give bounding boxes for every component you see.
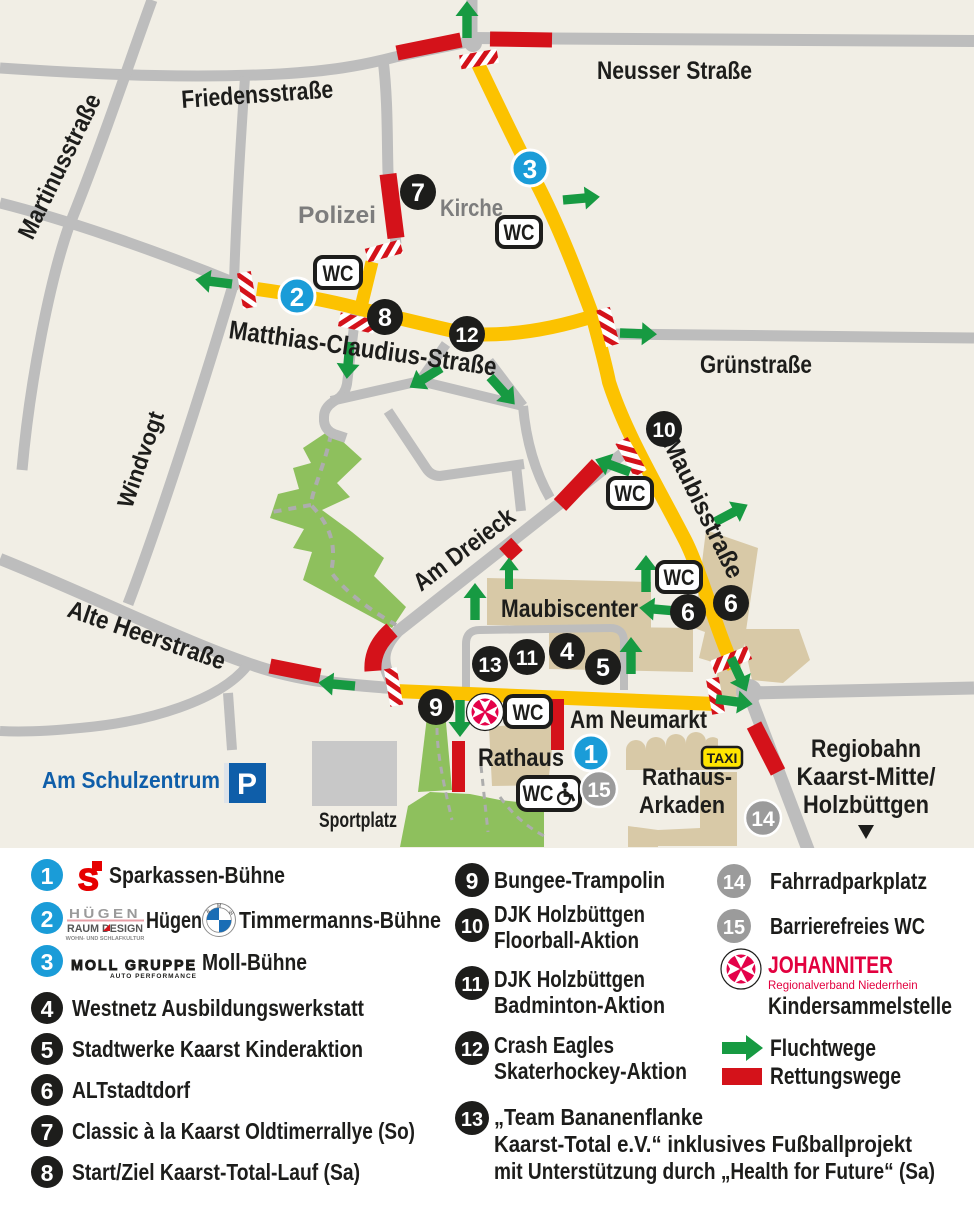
svg-text:WC: WC — [615, 481, 646, 506]
svg-text:Kindersammelstelle: Kindersammelstelle — [768, 993, 952, 1020]
svg-text:13: 13 — [478, 654, 501, 677]
svg-text:Grünstraße: Grünstraße — [700, 351, 812, 379]
svg-text:7: 7 — [41, 1119, 54, 1145]
svg-text:Moll-Bühne: Moll-Bühne — [202, 949, 307, 975]
svg-text:5: 5 — [596, 654, 610, 682]
svg-text:4: 4 — [560, 638, 574, 666]
svg-text:„Team Bananenflanke: „Team Bananenflanke — [494, 1104, 703, 1130]
svg-text:HÜGEN: HÜGEN — [69, 906, 141, 921]
svg-text:11: 11 — [461, 974, 482, 996]
svg-text:9: 9 — [466, 868, 479, 894]
svg-text:10: 10 — [652, 419, 675, 442]
svg-text:14: 14 — [723, 872, 746, 894]
svg-text:Stadtwerke Kaarst Kinderaktion: Stadtwerke Kaarst Kinderaktion — [72, 1036, 363, 1062]
svg-text:M: M — [217, 904, 221, 910]
svg-text:Arkaden: Arkaden — [639, 792, 725, 819]
svg-text:10: 10 — [461, 916, 483, 938]
svg-text:MOLL GRUPPE: MOLL GRUPPE — [71, 957, 197, 974]
svg-text:9: 9 — [429, 694, 443, 722]
svg-text:7: 7 — [411, 179, 425, 207]
svg-text:WC: WC — [504, 220, 535, 245]
svg-text:Am Neumarkt: Am Neumarkt — [570, 706, 708, 734]
svg-text:TAXI: TAXI — [707, 750, 738, 766]
svg-text:Polizei: Polizei — [298, 202, 376, 229]
svg-text:Kaarst-Mitte/: Kaarst-Mitte/ — [797, 763, 936, 791]
svg-text:P: P — [237, 768, 257, 801]
svg-text:6: 6 — [41, 1078, 54, 1104]
svg-text:12: 12 — [455, 324, 478, 347]
svg-text:Maubiscenter: Maubiscenter — [501, 595, 638, 623]
svg-text:Floorball-Aktion: Floorball-Aktion — [494, 927, 639, 953]
svg-text:12: 12 — [461, 1039, 483, 1061]
svg-text:8: 8 — [378, 304, 392, 332]
svg-text:6: 6 — [724, 590, 738, 618]
svg-text:Westnetz Ausbildungswerkstatt: Westnetz Ausbildungswerkstatt — [72, 995, 364, 1021]
svg-text:Start/Ziel Kaarst-Total-Lauf (: Start/Ziel Kaarst-Total-Lauf (Sa) — [72, 1159, 360, 1185]
svg-text:3: 3 — [41, 949, 54, 975]
svg-text:3: 3 — [523, 154, 537, 184]
svg-text:AUTO PERFORMANCE: AUTO PERFORMANCE — [110, 973, 197, 980]
svg-text:11: 11 — [516, 647, 539, 670]
svg-text:Barrierefreies WC: Barrierefreies WC — [770, 913, 925, 939]
svg-text:Neusser Straße: Neusser Straße — [597, 57, 752, 85]
svg-text:Regiobahn: Regiobahn — [811, 735, 921, 763]
svg-text:Timmermanns-Bühne: Timmermanns-Bühne — [239, 907, 441, 933]
svg-text:Kaarst-Total e.V.“ inklusives: Kaarst-Total e.V.“ inklusives Fußballpro… — [494, 1131, 912, 1157]
svg-text:JOHANNITER: JOHANNITER — [768, 952, 893, 979]
svg-text:1: 1 — [41, 863, 54, 889]
svg-text:5: 5 — [41, 1037, 54, 1063]
svg-text:Sportplatz: Sportplatz — [319, 809, 397, 832]
svg-text:2: 2 — [290, 282, 304, 312]
svg-text:Kirche: Kirche — [440, 195, 503, 222]
svg-text:Classic à la Kaarst Oldtimerra: Classic à la Kaarst Oldtimerrallye (So) — [72, 1118, 415, 1144]
svg-text:Rathaus: Rathaus — [478, 744, 564, 772]
svg-text:Badminton-Aktion: Badminton-Aktion — [494, 992, 665, 1018]
svg-text:WC: WC — [323, 261, 354, 286]
svg-text:WC: WC — [664, 565, 695, 590]
svg-text:6: 6 — [681, 599, 695, 627]
svg-text:DJK Holzbüttgen: DJK Holzbüttgen — [494, 966, 645, 992]
svg-text:Fluchtwege: Fluchtwege — [770, 1035, 876, 1062]
svg-text:Bungee-Trampolin: Bungee-Trampolin — [494, 867, 665, 893]
svg-text:ALTstadtdorf: ALTstadtdorf — [72, 1077, 190, 1103]
svg-text:1: 1 — [584, 739, 598, 769]
svg-text:15: 15 — [587, 779, 611, 802]
svg-text:Hügen: Hügen — [146, 907, 202, 933]
svg-text:14: 14 — [751, 808, 775, 831]
svg-text:Skaterhockey-Aktion: Skaterhockey-Aktion — [494, 1058, 687, 1084]
svg-text:WC: WC — [523, 781, 554, 806]
svg-text:Rettungswege: Rettungswege — [770, 1063, 901, 1090]
svg-text:DJK Holzbüttgen: DJK Holzbüttgen — [494, 901, 645, 927]
svg-text:Sparkassen-Bühne: Sparkassen-Bühne — [109, 862, 285, 888]
svg-text:15: 15 — [723, 917, 745, 939]
svg-text:8: 8 — [41, 1160, 54, 1186]
svg-text:Regionalverband Niederrhein: Regionalverband Niederrhein — [768, 980, 918, 992]
svg-text:WC: WC — [513, 700, 544, 725]
svg-text:13: 13 — [461, 1109, 483, 1131]
svg-text:4: 4 — [41, 996, 54, 1022]
svg-text:Am Schulzentrum: Am Schulzentrum — [42, 767, 220, 793]
svg-text:Holzbüttgen: Holzbüttgen — [803, 791, 929, 819]
svg-text:2: 2 — [41, 906, 54, 932]
svg-text:WOHN- UND SCHLAFKULTUR: WOHN- UND SCHLAFKULTUR — [66, 936, 145, 942]
svg-text:Fahrradparkplatz: Fahrradparkplatz — [770, 868, 927, 894]
svg-text:Crash Eagles: Crash Eagles — [494, 1032, 614, 1058]
svg-text:mit Unterstützung durch „Healt: mit Unterstützung durch „Health for Futu… — [494, 1158, 935, 1184]
